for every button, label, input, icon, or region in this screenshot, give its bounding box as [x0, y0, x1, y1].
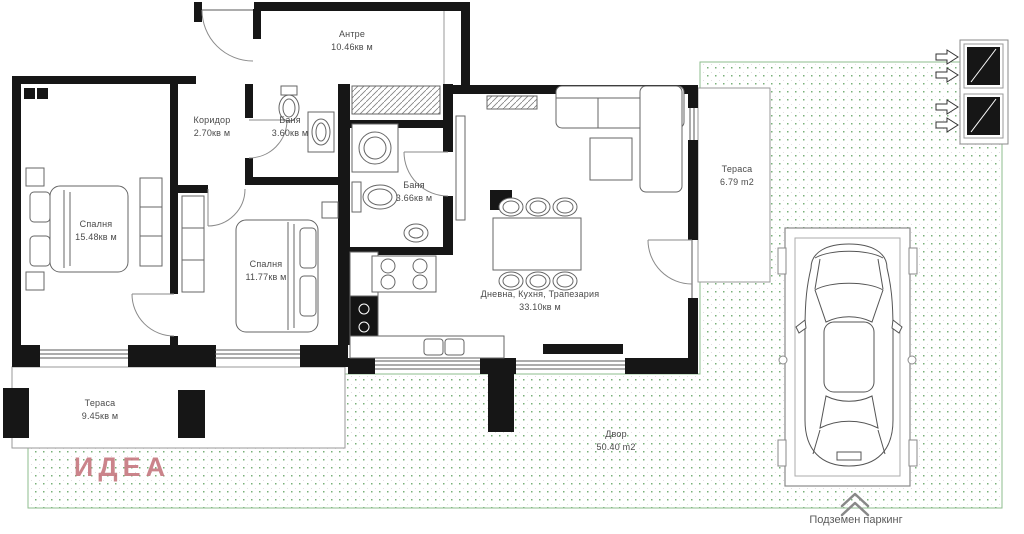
room-name: Двор: [596, 428, 635, 441]
room-area: 50.40 m2: [596, 441, 635, 454]
room-label-bedroom-2: Спалня 11.77кв м: [245, 258, 286, 284]
room-name: Спалня: [75, 218, 117, 231]
tv-cabinet: [456, 116, 465, 220]
room-name: Баня: [396, 179, 433, 192]
room-name: Спалня: [245, 258, 286, 271]
room-label-terrace-right: Тераса 6.79 m2: [720, 163, 754, 189]
room-area: 11.77кв м: [245, 271, 286, 284]
room-name: Антре: [331, 28, 373, 41]
radiator: [487, 96, 537, 109]
coffee-table: [590, 138, 632, 180]
wardrobe-1: [140, 178, 162, 266]
car: [796, 244, 902, 466]
room-name: Коридор: [194, 114, 231, 127]
room-name: Тераса: [720, 163, 754, 176]
wardrobe-2: [182, 196, 204, 292]
room-area: 9.45кв м: [82, 410, 119, 423]
room-name: Баня: [272, 114, 309, 127]
room-name: Тераса: [82, 397, 119, 410]
brand-logo: ИДЕА: [74, 452, 170, 483]
room-area: 3.66кв м: [396, 192, 433, 205]
room-name: Дневна, Кухня, Трапезария: [481, 288, 600, 301]
room-label-terrace-bottom: Тераса 9.45кв м: [82, 397, 119, 423]
dining-set: [493, 198, 581, 290]
room-label-bedroom-1: Спалня 15.48кв м: [75, 218, 117, 244]
sofa: [556, 86, 684, 192]
room-area: 10.46кв м: [331, 41, 373, 54]
floor-plan: Антре 10.46кв м Спалня 15.48кв м Коридор…: [0, 0, 1024, 534]
room-label-living: Дневна, Кухня, Трапезария 33.10кв м: [481, 288, 600, 314]
room-area: 6.79 m2: [720, 176, 754, 189]
room-area: 33.10кв м: [481, 301, 600, 314]
room-label-yard: Двор 50.40 m2: [596, 428, 635, 454]
room-area: 15.48кв м: [75, 231, 117, 244]
parking-label: Подземен паркинг: [809, 514, 902, 526]
room-label-bathroom-2: Баня 3.66кв м: [396, 179, 433, 205]
furniture: [26, 86, 684, 358]
closet-hatched: [352, 86, 440, 114]
room-area: 3.60кв м: [272, 127, 309, 140]
room-label-entry: Антре 10.46кв м: [331, 28, 373, 54]
room-area: 2.70кв м: [194, 127, 231, 140]
room-label-bathroom-1: Баня 3.60кв м: [272, 114, 309, 140]
room-label-corridor: Коридор 2.70кв м: [194, 114, 231, 140]
